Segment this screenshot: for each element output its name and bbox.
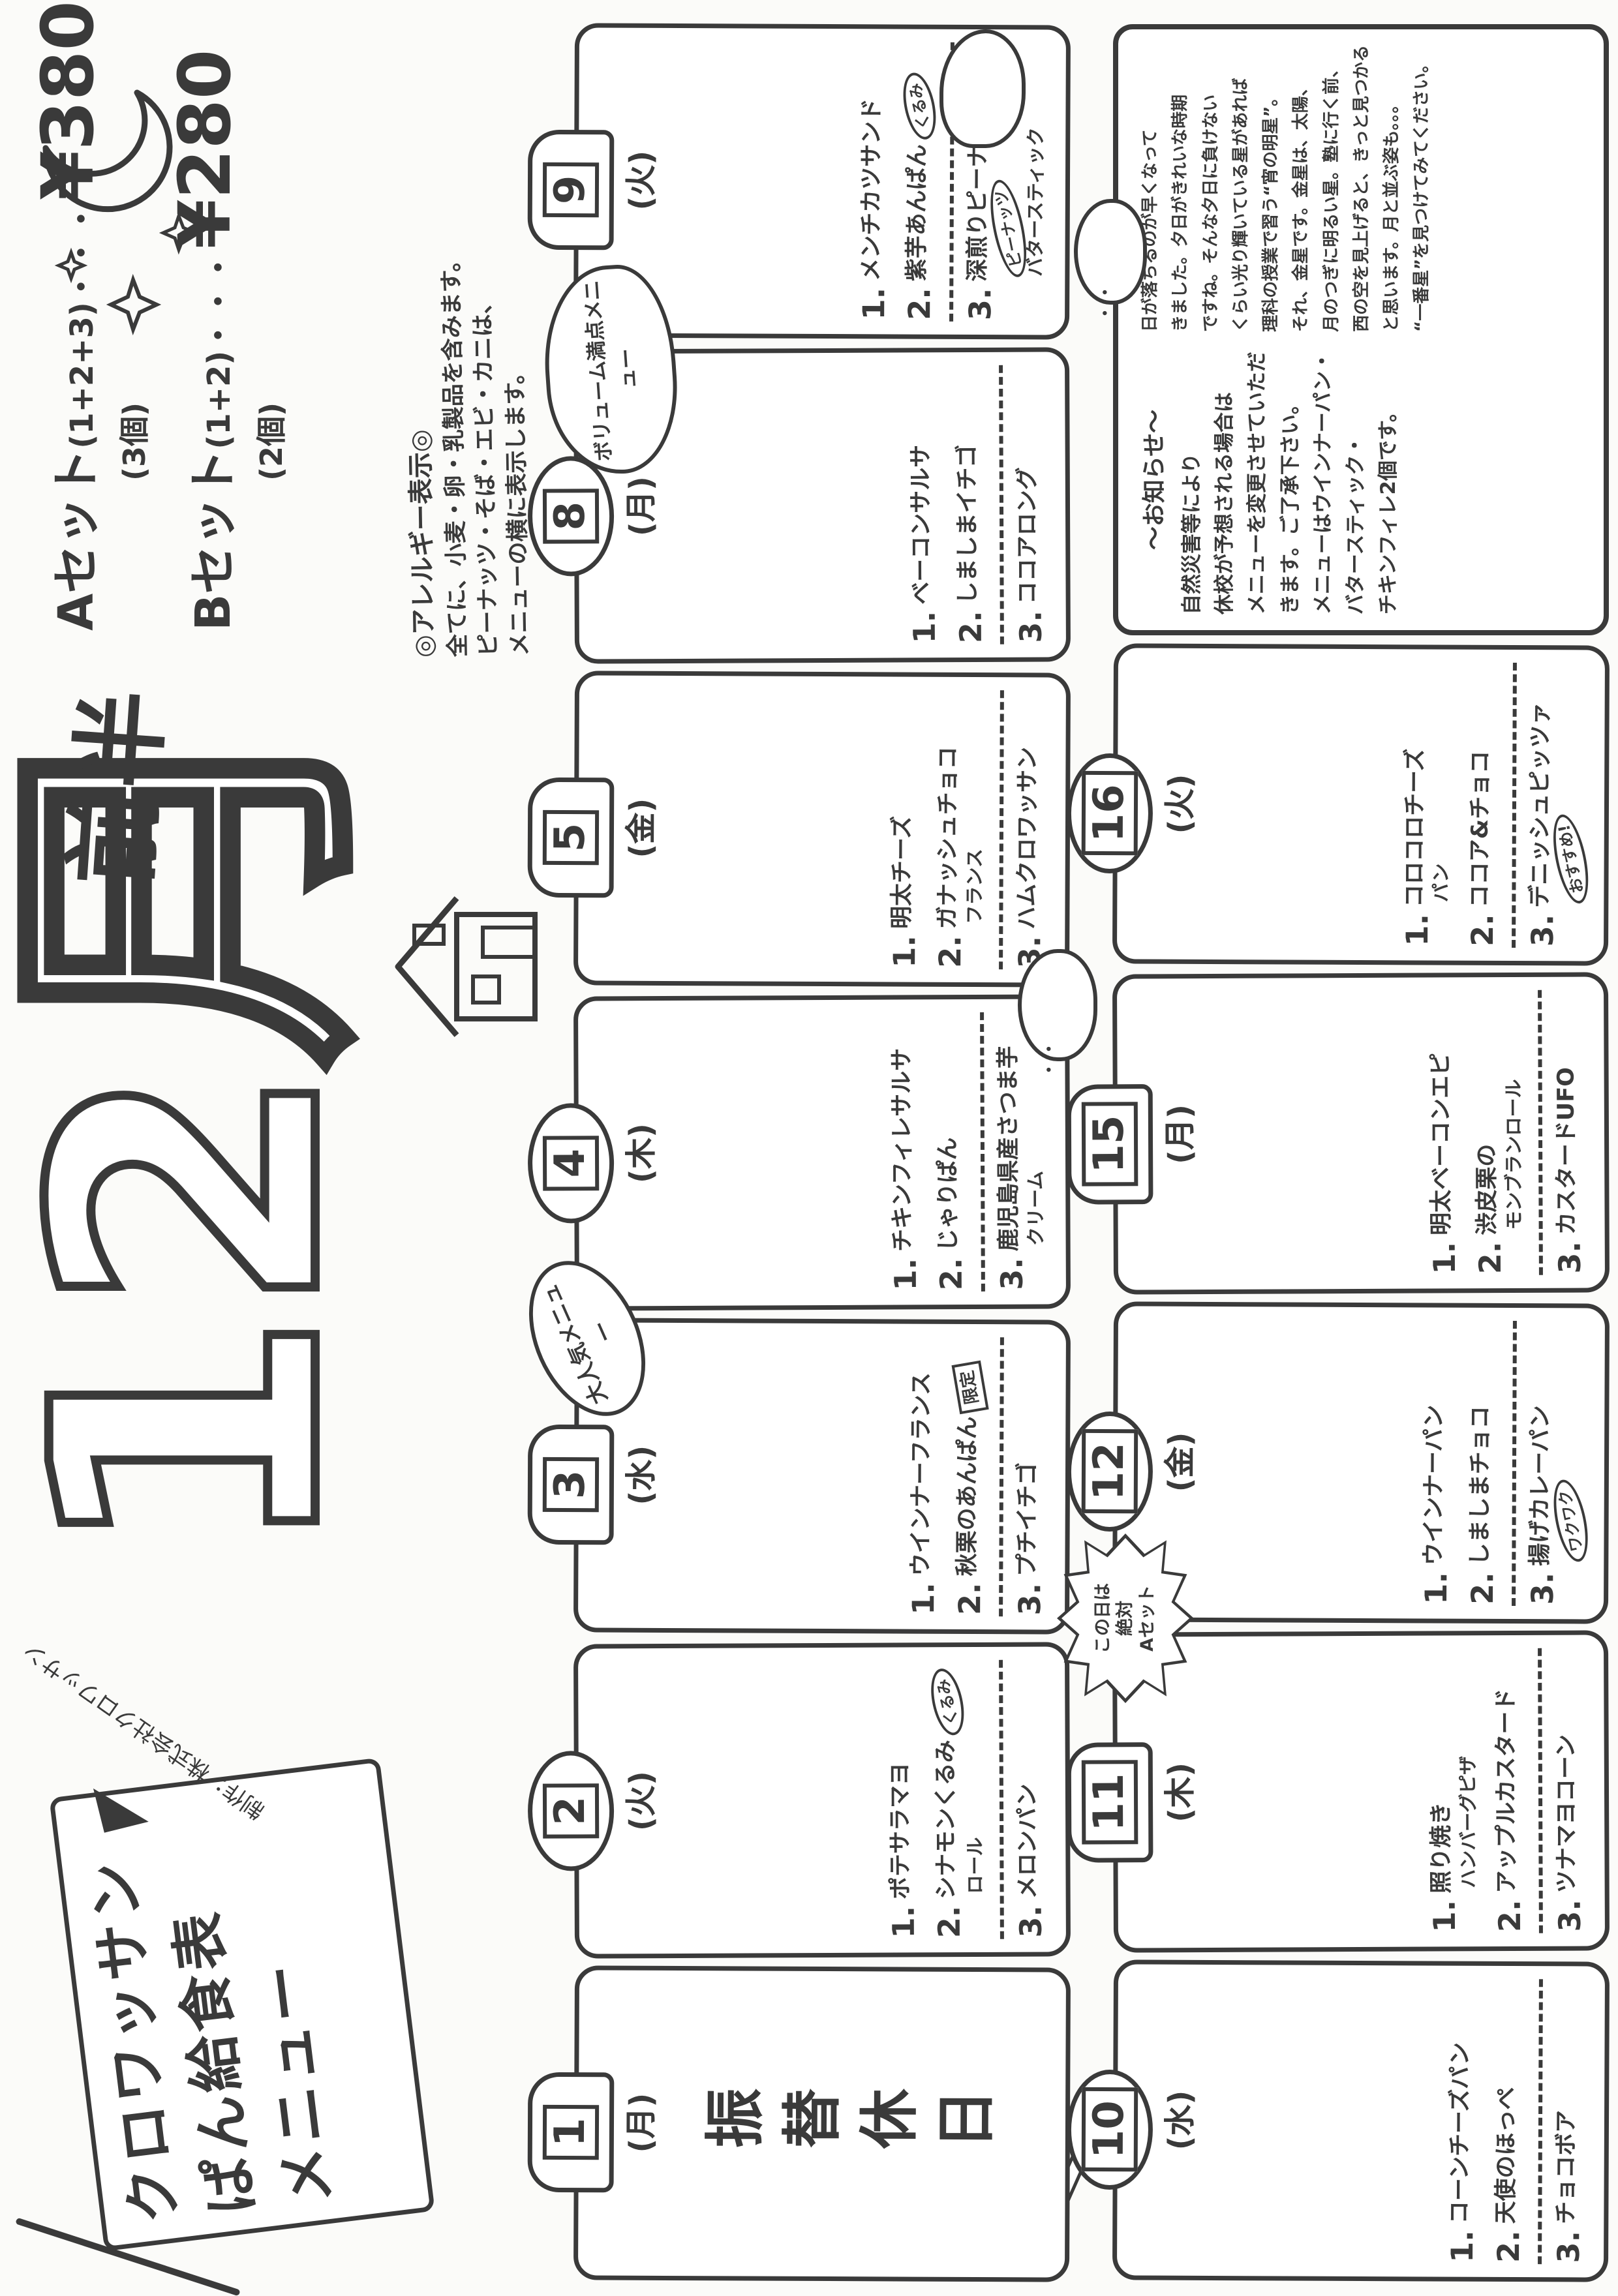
set-a-qty: (3個) — [111, 18, 154, 481]
day-cell: 5 (金) 1.明太チーズ2.ガナッシュチョコフランス3.ハムクロワッサン — [573, 671, 1071, 988]
limited-stamp: 限定 — [951, 1361, 988, 1415]
day-of-week: (火) — [1153, 661, 1200, 946]
item-text: ポテサラマヨ — [886, 1762, 915, 1899]
text-line: この日は — [1092, 1583, 1114, 1654]
item-name: コーンチーズパン — [1447, 2042, 1474, 2224]
menu-item: 2.じゃりぱん — [927, 1012, 974, 1292]
item-number: 1. — [857, 288, 891, 320]
item-subtext: ハンバーグピザ — [1456, 1756, 1480, 1888]
item-number: 1. — [888, 935, 921, 968]
item-text: デニッシュピッツァおすすめ! — [1527, 664, 1587, 907]
first-star-essay: 日が落ちるのが早くなってきました。夕日がきれいな時期ですね。そんな夕日に負けない… — [1135, 45, 1587, 335]
day-cell: 2 (火) 1.ポテサラマヨ2.シナモンくるみくるみロール3.メロンパン — [573, 1642, 1071, 1959]
date-number: 8 — [543, 488, 599, 543]
notes-box: 〜お知らせ〜 自然災害等により休校が予想される場合はメニューを変更させていただき… — [1113, 24, 1609, 635]
item-badge-oval: ワクワク — [1548, 1476, 1594, 1564]
menu-item: 3.メロンパン — [999, 1659, 1054, 1939]
item-number: 1. — [1420, 1572, 1453, 1605]
item-text: シナモンくるみくるみロール — [932, 1668, 987, 1899]
menu-item: 1.ポテサラマヨ — [879, 1660, 926, 1940]
item-number: 3. — [996, 1258, 1029, 1290]
menu-item: 1.ベーコンサルサ — [900, 365, 947, 644]
item-number: 1. — [1401, 913, 1434, 946]
menu-item: 3.ココアロング — [999, 365, 1054, 644]
text-line: 休校が予想される場合は — [1208, 345, 1241, 614]
item-number: 2. — [953, 1583, 986, 1616]
item-name: 天使のほっぺ — [1493, 2087, 1519, 2224]
item-text: ベーコンサルサ — [908, 444, 937, 604]
item-name: 揚げカレーパン — [1527, 1405, 1554, 1566]
item-number: 2. — [1466, 1572, 1499, 1605]
menu-item: 2.紫芋あんぱんくるみ — [896, 42, 943, 322]
text-line: 自然災害等により — [1176, 345, 1208, 614]
month-half-label: 前半 — [33, 685, 187, 890]
date-number: 1 — [543, 2104, 599, 2160]
item-number: 1. — [1428, 1242, 1461, 1275]
item-text: コーンチーズパン — [1446, 2042, 1476, 2224]
price-row-a: Aセット(1+2+3)・・・¥380 — [26, 18, 110, 631]
item-number: 2. — [934, 935, 967, 968]
item-text: ツナマヨコーン — [1553, 1734, 1582, 1893]
item-name: ベーコンサルサ — [908, 444, 935, 604]
item-number: 3. — [1015, 1905, 1048, 1938]
item-name: デニッシュピッツァ — [1527, 702, 1554, 907]
item-name: アップルカスタード — [1493, 1689, 1519, 1894]
item-text: カスタードUFO — [1553, 1067, 1582, 1235]
menu-item: 1.照り焼きハンバーグピザ — [1420, 1649, 1487, 1934]
text-line: きます。ご了承下さい。 — [1274, 345, 1307, 614]
allergy-lines: 全てに、小麦・卵・乳製品を含みます。ピーナッツ・そば・エビ・カニは、メニューの横… — [434, 95, 536, 657]
item-number: 3. — [1013, 1583, 1046, 1616]
date-tab-bread-icon: 3 — [528, 1425, 615, 1545]
item-text: しましまイチゴ — [953, 444, 983, 604]
date-tab-bread-icon: 4 — [528, 1103, 615, 1224]
item-name: メロンパン — [1015, 1783, 1041, 1899]
day-of-week: (木) — [615, 1014, 662, 1293]
date-number: 15 — [1082, 1102, 1138, 1186]
item-text: 明太チーズ — [888, 816, 917, 929]
title-banner: クロワッサン ぱん給食表 メニュー 制作：株式会社クロワッサン — [17, 1704, 435, 2278]
set-b-label: Bセット — [185, 449, 241, 631]
item-subtext: モンブランロール — [1502, 1080, 1526, 1230]
item-name: シナモンくるみ — [933, 1740, 960, 1899]
item-name: 鹿児島県産さつま芋 — [995, 1046, 1022, 1251]
set-b-qty: (2個) — [248, 18, 291, 481]
item-name: 渋皮栗の — [1474, 1144, 1501, 1235]
day-of-week: (金) — [615, 688, 662, 968]
date-tab-bread-icon: 2 — [528, 1751, 615, 1871]
text-line: と思います。月と並ぶ姿も。。。 — [1377, 45, 1407, 332]
menu-item-list: 1.チキンフィレサルサ2.じゃりぱん3.鹿児島県産さつま芋クリーム — [881, 1012, 1054, 1291]
item-number: 3. — [1526, 914, 1559, 946]
item-subtext: ロール — [962, 1668, 987, 1894]
bitten-bun-icon: ・・ — [1018, 949, 1097, 1061]
text-line: 西の空を見上げると、きっと見つかる — [1347, 45, 1377, 332]
date-number: 3 — [543, 1457, 599, 1513]
menu-item-list: 1.照り焼きハンバーグピザ2.アップルカスタード3.ツナマヨコーン — [1420, 1648, 1593, 1934]
item-text: コロコロチーズパン — [1401, 748, 1454, 907]
text-line: 理科の授業で習う“宵の明星”。 — [1256, 45, 1286, 332]
set-b-price: ¥280 — [163, 50, 247, 249]
item-text: ウインナーパン — [1420, 1404, 1449, 1565]
menu-item-list: 1.ウインナーフランス2.秋栗のあんぱん限定3.プチイチゴ — [900, 1337, 1054, 1617]
text-line: それ、金星です。金星は、太陽、 — [1286, 45, 1316, 332]
item-name: ガナッシュチョコ — [935, 746, 962, 929]
item-subtext: パン — [1429, 748, 1454, 901]
menu-item-list: 1.ウインナーパン2.しましまチョコ3.揚げカレーパンワクワク — [1413, 1321, 1593, 1607]
item-text: ココア&チョコ — [1466, 750, 1495, 907]
item-name: しましまチョコ — [1467, 1406, 1493, 1565]
menu-item: 2.シナモンくるみくるみロール — [925, 1659, 994, 1939]
house-icon — [378, 885, 557, 1048]
item-name: ツナマヨコーン — [1553, 1734, 1580, 1893]
item-text: ハムクロワッサン — [1014, 747, 1043, 929]
item-number: 1. — [1446, 2230, 1479, 2263]
set-a-dots: ・・・ — [64, 200, 100, 302]
menu-item: 3.揚げカレーパンワクワク — [1512, 1321, 1593, 1606]
date-number: 16 — [1082, 771, 1138, 855]
item-number: 2. — [903, 288, 936, 320]
allergy-note: ◎アレルギー表示◎ 全てに、小麦・卵・乳製品を含みます。ピーナッツ・そば・エビ・… — [393, 95, 536, 657]
item-name: カスタードUFO — [1553, 1067, 1580, 1235]
item-number: 1. — [889, 1258, 923, 1291]
allergy-header: ◎アレルギー表示◎ — [393, 97, 441, 658]
date-number: 11 — [1082, 1760, 1138, 1845]
item-number: 1. — [908, 611, 941, 643]
date-tab-bread-icon: 16 — [1067, 753, 1153, 873]
set-a-formula: (1+2+3) — [64, 302, 100, 449]
item-text: 天使のほっぺ — [1492, 2087, 1521, 2224]
item-name: ココアロング — [1015, 467, 1041, 604]
menu-item: 3.ハムクロワッサン — [999, 690, 1054, 970]
text-line: 日が落ちるのが早くなって — [1135, 45, 1165, 332]
item-name: ポテサラマヨ — [887, 1762, 913, 1899]
menu-item: 1.チキンフィレサルサ — [881, 1012, 928, 1292]
item-name: ウインナーパン — [1420, 1404, 1447, 1565]
set-a-label: Aセット — [48, 449, 104, 631]
day-of-week: (水) — [1153, 1978, 1200, 2263]
item-badge-oval: くるみ — [898, 70, 941, 143]
item-name: メンチカツサンド — [858, 98, 885, 281]
menu-item: 3.プチイチゴ — [999, 1337, 1054, 1617]
item-text: じゃりぱん — [934, 1138, 964, 1252]
menu-item-list: 1.明太チーズ2.ガナッシュチョコフランス3.ハムクロワッサン — [881, 689, 1054, 969]
menu-item: 1.メンチカツサンド — [851, 42, 898, 322]
menu-item: 1.ウインナーパン — [1413, 1321, 1460, 1606]
item-text: チキンフィレサルサ — [888, 1048, 917, 1252]
date-number: 12 — [1082, 1429, 1138, 1513]
item-name: 明太チーズ — [889, 816, 915, 929]
day-cell: 1 (月) 振替休日 — [573, 1965, 1071, 2282]
date-tab-bread-icon: 15 — [1067, 1084, 1153, 1205]
bread-bun-icon: ・・ — [1074, 199, 1147, 305]
item-text: 明太ベーコンエピ — [1427, 1053, 1456, 1235]
item-text: プチイチゴ — [1014, 1462, 1043, 1577]
item-name: プチイチゴ — [1015, 1462, 1041, 1577]
item-text: 揚げカレーパンワクワク — [1527, 1322, 1587, 1565]
holiday-label: 振替休日 — [703, 2080, 1012, 2168]
date-tab-bread-icon: 8 — [528, 456, 615, 577]
date-number: 5 — [543, 809, 599, 865]
menu-item: 3.ツナマヨコーン — [1538, 1648, 1593, 1933]
item-name: ウインナーフランス — [908, 1372, 935, 1576]
menu-sheet: クロワッサン ぱん給食表 メニュー 制作：株式会社クロワッサン 12月 前半 — [0, 0, 1618, 2288]
date-tab-bread-icon: 1 — [528, 2072, 615, 2193]
day-cell: 4 (木) 1.チキンフィレサルサ2.じゃりぱん3.鹿児島県産さつま芋クリーム — [573, 994, 1071, 1311]
item-subtext: フランス — [963, 746, 987, 924]
item-number: 3. — [1553, 1241, 1587, 1274]
set-b-formula: (1+2) — [201, 351, 237, 449]
item-number: 3. — [1526, 1572, 1559, 1605]
text-line: チキンフィレ2個です。 — [1372, 345, 1405, 614]
menu-item: 1.コロコロチーズパン — [1394, 662, 1461, 947]
item-number: 3. — [964, 288, 997, 321]
item-number: 2. — [933, 1905, 966, 1938]
item-text: 秋栗のあんぱん限定 — [953, 1363, 985, 1577]
item-number: 2. — [954, 611, 988, 643]
item-number: 1. — [907, 1583, 940, 1616]
date-number: 4 — [543, 1136, 599, 1191]
date-tab-bread-icon: 10 — [1067, 2069, 1153, 2190]
item-text: しましまチョコ — [1466, 1406, 1495, 1565]
item-subtext: バタースティック — [1023, 44, 1048, 277]
day-cell: 16 (火) 1.コロコロチーズパン2.ココア&チョコ3.デニッシュピッツァおす… — [1112, 643, 1610, 965]
menu-item: 3.チョコボア — [1538, 1980, 1593, 2265]
menu-item: 2.秋栗のあんぱん限定 — [947, 1337, 994, 1617]
menu-item-list: 1.コーンチーズパン2.天使のほっぺ3.チョコボア — [1439, 1979, 1593, 2265]
notice-lines: 自然災害等により休校が予想される場合はメニューを変更させていただきます。ご了承下… — [1176, 345, 1405, 614]
text-line: 月のつぎに明るい星。塾に行く前、 — [1317, 45, 1347, 332]
item-number: 2. — [1492, 2230, 1525, 2263]
item-name: 明太ベーコンエピ — [1427, 1053, 1454, 1235]
item-name: ハムクロワッサン — [1015, 747, 1041, 929]
date-number: 9 — [543, 162, 599, 218]
item-name: 秋栗のあんぱん — [954, 1417, 981, 1577]
text-line: くらい光り輝いている星があれば — [1226, 45, 1256, 332]
item-number: 3. — [1552, 2231, 1585, 2263]
item-number: 2. — [1466, 914, 1499, 946]
item-text: ココアロング — [1014, 467, 1043, 604]
banner-flag: クロワッサン ぱん給食表 メニュー — [49, 1758, 435, 2252]
menu-item: 1.ウインナーフランス — [900, 1337, 947, 1617]
menu-item-list: 1.明太ベーコンエピ2.渋皮栗のモンブランロール3.カスタードUFO — [1420, 990, 1593, 1276]
menu-item: 1.コーンチーズパン — [1439, 1979, 1486, 2264]
item-text: 渋皮栗のモンブランロール — [1473, 1080, 1526, 1235]
item-number: 1. — [1428, 1900, 1461, 1933]
item-text: ウインナーフランス — [908, 1372, 937, 1576]
day-cell: 10 (水) 1.コーンチーズパン2.天使のほっぺ3.チョコボア — [1112, 1960, 1610, 2282]
item-name: チキンフィレサルサ — [889, 1048, 915, 1252]
menu-item: 3.カスタードUFO — [1538, 990, 1593, 1275]
set-a-price: ¥380 — [26, 1, 110, 200]
item-text: 紫芋あんぱんくるみ — [904, 73, 935, 282]
menu-item-list: 1.コロコロチーズパン2.ココア&チョコ3.デニッシュピッツァおすすめ! — [1394, 662, 1593, 948]
text-line: ですね。そんな夕日に負けない — [1196, 45, 1226, 332]
day-cell: 15 (月) 1.明太ベーコンエピ2.渋皮栗のモンブランロール3.カスタードUF… — [1112, 973, 1610, 1295]
text-line: バタースティック・ — [1339, 345, 1372, 614]
price-row-b: Bセット(1+2)・・・¥280 — [163, 18, 247, 631]
day-cell: 3 (水) 1.ウインナーフランス2.秋栗のあんぱん限定3.プチイチゴ — [573, 1318, 1071, 1635]
item-name: じゃりぱん — [935, 1138, 962, 1252]
item-number: 2. — [1474, 1242, 1507, 1275]
day-of-week: (火) — [615, 1661, 662, 1941]
item-number: 3. — [1553, 1899, 1587, 1932]
item-name: 照り焼き — [1428, 1802, 1455, 1894]
item-text: アップルカスタード — [1492, 1689, 1521, 1894]
menu-item: 3.デニッシュピッツァおすすめ! — [1512, 663, 1593, 948]
menu-item: 2.アップルカスタード — [1486, 1649, 1533, 1934]
item-name: 紫芋あんぱん — [904, 144, 931, 281]
text-line: メニューはウインナーパン・ — [1307, 345, 1339, 614]
item-text: メンチカツサンド — [857, 98, 887, 281]
menu-item: 2.ココア&チョコ — [1459, 663, 1506, 948]
crumb-dots: ・・ — [1033, 1038, 1062, 1080]
menu-item: 2.天使のほっぺ — [1486, 1979, 1533, 2264]
date-tab-bread-icon: 5 — [528, 777, 615, 898]
item-name: チョコボア — [1553, 2110, 1580, 2224]
text-line: “一番星”を見つけてみてください。 — [1407, 45, 1437, 332]
item-text: メロンパン — [1014, 1783, 1043, 1899]
menu-item-list: 1.ポテサラマヨ2.シナモンくるみくるみロール3.メロンパン — [879, 1659, 1054, 1939]
text-line: メニューを変更させていただ — [1241, 345, 1274, 614]
crumb-dots: ・・ — [1090, 281, 1118, 323]
set-b-dots: ・・・ — [201, 249, 237, 351]
notice-block: 〜お知らせ〜 自然災害等により休校が予想される場合はメニューを変更させていただき… — [1135, 345, 1587, 614]
date-tab-bread-icon: 9 — [528, 130, 615, 250]
day-of-week: (月) — [615, 1983, 662, 2263]
menu-item: 1.明太ベーコンエピ — [1420, 991, 1467, 1276]
item-name: ココア&チョコ — [1467, 750, 1493, 907]
item-text: ガナッシュチョコフランス — [934, 746, 987, 929]
date-number: 10 — [1082, 2087, 1138, 2171]
item-badge-oval: おすすめ! — [1547, 811, 1595, 905]
item-number: 1. — [887, 1906, 920, 1939]
menu-item: 2.しましまイチゴ — [947, 365, 994, 644]
a-set-starburst: この日は絶対Aセット — [1057, 1533, 1194, 1703]
item-number: 2. — [935, 1258, 968, 1291]
starburst-text: この日は絶対Aセット — [1092, 1583, 1158, 1654]
menu-item: 2.ガナッシュチョコフランス — [927, 689, 994, 969]
calendar-row-2: 10 (水) 1.コーンチーズパン2.天使のほっぺ3.チョコボア 11 (木) … — [1113, 24, 1609, 2281]
item-name: コロコロチーズ — [1401, 748, 1428, 907]
menu-item: 2.しましまチョコ — [1459, 1321, 1506, 1606]
item-name: しましまイチゴ — [954, 444, 981, 604]
date-tab-bread-icon: 11 — [1067, 1742, 1153, 1863]
text-line: きました。夕日がきれいな時期 — [1165, 45, 1195, 332]
date-tab-bread-icon: 12 — [1067, 1411, 1153, 1532]
day-of-week: (月) — [1153, 992, 1200, 1277]
item-text: 照り焼きハンバーグピザ — [1427, 1756, 1480, 1894]
item-number: 2. — [1493, 1900, 1527, 1933]
text-line: Aセット — [1137, 1583, 1159, 1654]
notice-header: 〜お知らせ〜 — [1135, 345, 1169, 614]
text-line: 絶対 — [1114, 1583, 1137, 1654]
item-text: チョコボア — [1553, 2110, 1582, 2224]
item-number: 3. — [1015, 611, 1048, 643]
menu-item: 1.明太チーズ — [881, 689, 928, 969]
menu-item-list: 1.ベーコンサルサ2.しましまイチゴ3.ココアロング — [900, 365, 1054, 644]
price-list: Aセット(1+2+3)・・・¥380 (3個) Bセット(1+2)・・・¥280… — [26, 18, 300, 631]
date-number: 2 — [543, 1783, 599, 1839]
menu-item: 2.渋皮栗のモンブランロール — [1466, 991, 1533, 1276]
